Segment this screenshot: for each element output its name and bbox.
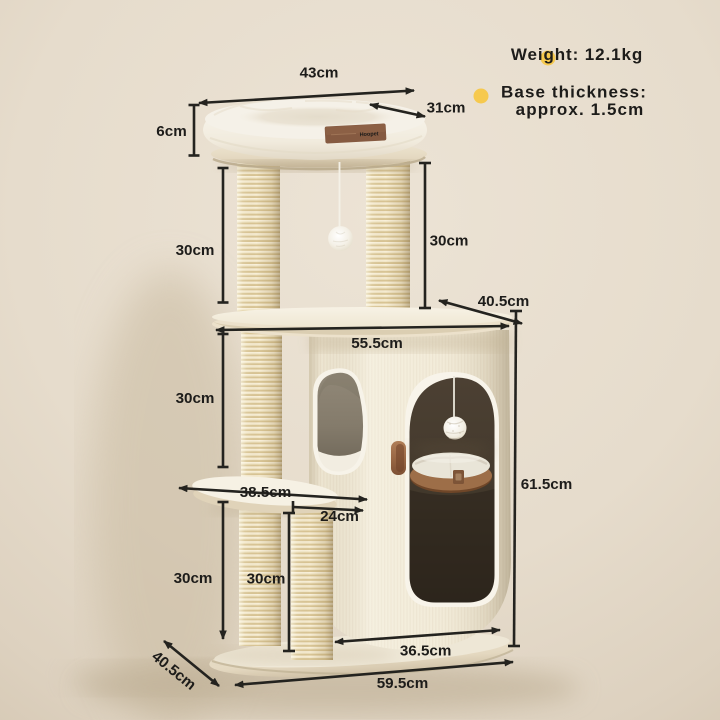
- svg-text:30cm: 30cm: [247, 571, 286, 588]
- svg-text:6cm: 6cm: [156, 123, 186, 140]
- svg-text:Base thickness:: Base thickness:: [501, 83, 647, 102]
- svg-text:36.5cm: 36.5cm: [400, 643, 452, 660]
- svg-text:38.5cm: 38.5cm: [240, 484, 292, 501]
- svg-text:30cm: 30cm: [176, 390, 215, 407]
- svg-text:30cm: 30cm: [176, 242, 215, 259]
- svg-text:40.5cm: 40.5cm: [478, 293, 530, 310]
- svg-text:55.5cm: 55.5cm: [351, 335, 403, 352]
- svg-text:30cm: 30cm: [430, 233, 469, 250]
- svg-text:approx. 1.5cm: approx. 1.5cm: [516, 100, 645, 119]
- svg-text:Hoopet: Hoopet: [359, 131, 378, 138]
- svg-text:43cm: 43cm: [300, 65, 339, 82]
- svg-text:59.5cm: 59.5cm: [377, 675, 429, 692]
- svg-text:31cm: 31cm: [427, 100, 466, 117]
- svg-text:24cm: 24cm: [320, 508, 359, 525]
- svg-text:30cm: 30cm: [174, 570, 213, 587]
- svg-text:61.5cm: 61.5cm: [521, 476, 573, 493]
- svg-text:Weight: 12.1kg: Weight: 12.1kg: [511, 45, 643, 64]
